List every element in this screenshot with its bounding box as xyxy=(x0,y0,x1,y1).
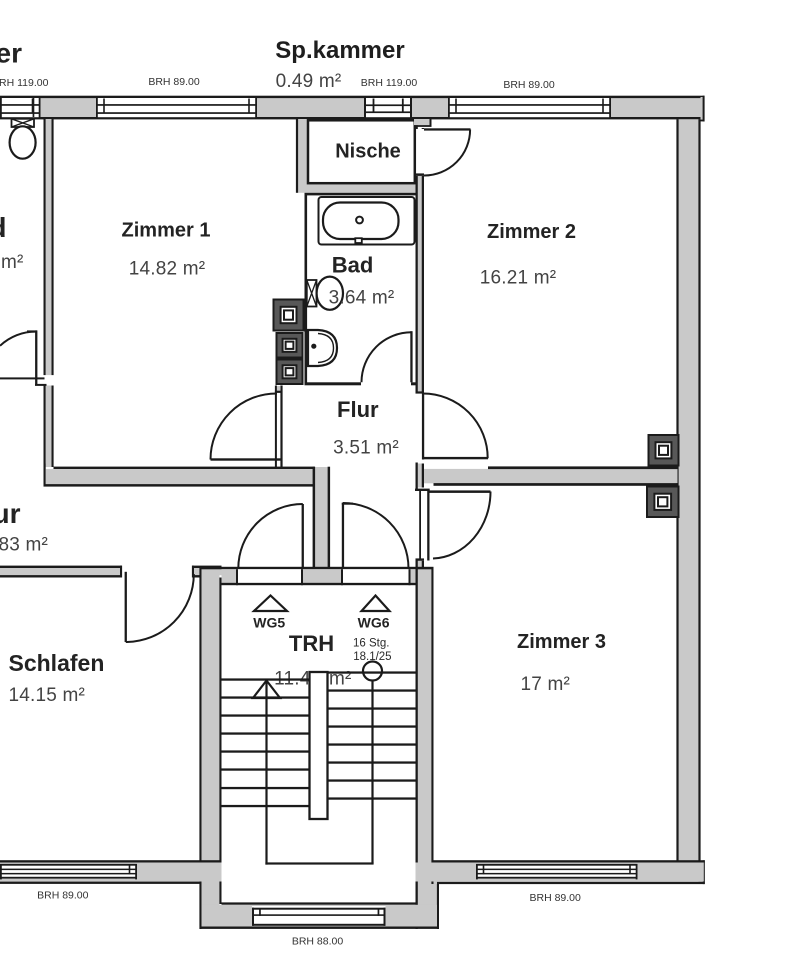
svg-text:BRH 89.00: BRH 89.00 xyxy=(503,79,555,91)
svg-text:Flur: Flur xyxy=(337,397,379,422)
svg-text:0.49 m²: 0.49 m² xyxy=(276,71,342,92)
svg-text:16.21 m²: 16.21 m² xyxy=(480,268,557,289)
svg-text:er: er xyxy=(0,38,22,69)
svg-text:BRH 89.00: BRH 89.00 xyxy=(148,76,200,88)
svg-text:16 Stg.: 16 Stg. xyxy=(353,638,389,650)
svg-text:BRH 88.00: BRH 88.00 xyxy=(292,936,344,948)
svg-text:Zimmer 3: Zimmer 3 xyxy=(517,631,606,653)
svg-text:Sp.kammer: Sp.kammer xyxy=(275,37,404,64)
svg-text:m²: m² xyxy=(1,252,24,273)
svg-text:Zimmer 2: Zimmer 2 xyxy=(487,221,576,243)
svg-text:ur: ur xyxy=(0,498,21,529)
svg-text:Nische: Nische xyxy=(335,141,401,163)
svg-text:BRH 119.00: BRH 119.00 xyxy=(0,77,49,89)
svg-text:17 m²: 17 m² xyxy=(521,674,571,695)
svg-text:d: d xyxy=(0,212,7,243)
svg-text:WG5: WG5 xyxy=(253,615,285,631)
svg-text:3.51 m²: 3.51 m² xyxy=(333,438,399,459)
svg-text:3.64 m²: 3.64 m² xyxy=(329,288,395,309)
svg-text:BRH 89.00: BRH 89.00 xyxy=(530,892,582,904)
svg-text:14.15 m²: 14.15 m² xyxy=(9,685,86,706)
svg-text:WG6: WG6 xyxy=(358,615,390,631)
svg-text:83 m²: 83 m² xyxy=(0,535,48,556)
svg-text:BRH 89.00: BRH 89.00 xyxy=(37,890,89,902)
svg-text:Zimmer 1: Zimmer 1 xyxy=(122,220,211,242)
svg-text:Schlafen: Schlafen xyxy=(9,650,105,676)
svg-text:TRH: TRH xyxy=(289,631,334,656)
svg-text:Bad: Bad xyxy=(332,253,374,278)
svg-text:14.82 m²: 14.82 m² xyxy=(129,259,206,280)
svg-text:BRH 119.00: BRH 119.00 xyxy=(361,77,418,89)
